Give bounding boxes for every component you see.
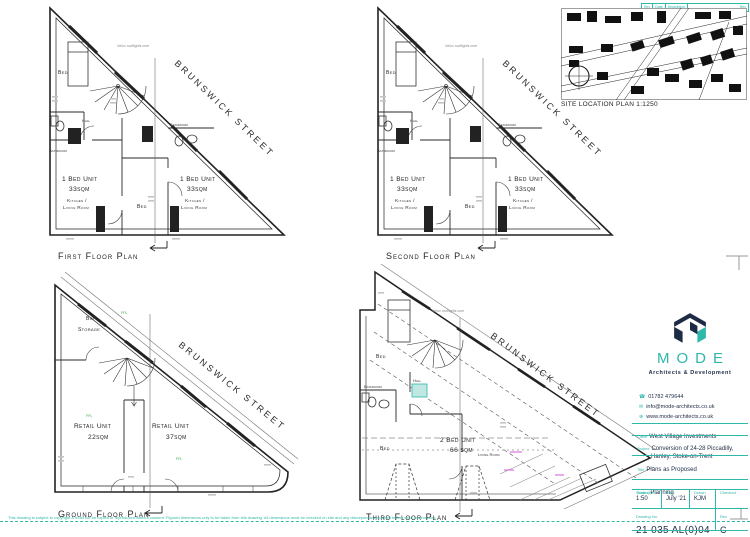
brand-name: MODE [632,350,748,367]
date-label: Date [666,490,689,495]
revision-label: Rev [720,514,727,519]
plan-linework [55,272,298,516]
phone-icon: ☎ [639,394,645,400]
title-value: Plans as Proposed [646,467,696,473]
room-label-bathroom-left: Bathroom [377,148,395,153]
site-location-map [561,8,747,100]
plan-caption: First Floor Plan [58,251,138,261]
unit-right-name: 1 Bed Unit [508,176,544,183]
drawing-number-cell: Drawing No. 21 035 AL(0)04 [632,504,716,530]
ground-floor-plan: BRUNSWICK STREET Bin Storage FFL FFL FFL… [28,268,358,530]
room-label-bathroom-right: Bathroom [170,122,188,127]
title-label: Title [637,467,644,472]
street-label: BRUNSWICK STREET [489,331,603,420]
divider [632,455,748,456]
drawn-label: Drawn [694,490,715,495]
room-label-bed-top: Bed [376,354,386,360]
unit-left-name: 1 Bed Unit [62,176,98,183]
drawing-number-label: Drawing No. [636,514,658,519]
room-label-bed-mid: Bed [380,446,390,452]
title-block: MODE Architects & Development ☎01782 479… [632,306,748,532]
room-label-bed: Bed [58,70,68,76]
room-label-bin1: Bin [86,316,94,322]
room-label-bathroom-left: Bathroom [49,148,67,153]
contact-phone-row: ☎01782 479644 [639,394,683,400]
contact-web-row: ⊕www.mode-architects.co.uk [639,414,713,420]
email-address: info@mode-architects.co.uk [646,404,714,410]
plan-note: Velux rooflights over [432,309,465,313]
unit-left-area: 33sqm [397,186,418,193]
email-icon: ✉ [639,404,643,410]
unit-right-kitchen2: Living Room [181,205,207,211]
brand-tagline: Architects & Development [632,370,748,376]
unit-right-area: 33sqm [515,186,536,193]
unit-area: 66 sqm [450,447,473,454]
unit-name: 2 Bed Unit [440,437,476,444]
unit-left-kitchen1: Kitchen / [395,198,415,204]
divider [632,530,748,531]
room-label-bed-core: Bed [465,204,475,210]
divider [632,435,748,436]
retail-right-area: 37sqm [166,434,187,441]
unit-left-name: 1 Bed Unit [390,176,426,183]
phone-number: 01782 479644 [648,394,683,400]
drawing-sheet: Rev Date Description Rev Velux rooflight… [0,0,750,537]
mode-logo-icon [672,312,708,346]
room-label-living: Living Room [478,452,500,457]
first-floor-plan: Velux rooflights over BRUNSWICK STREET B… [22,0,342,268]
room-label-bin2: Storage [78,327,100,333]
web-address: www.mode-architects.co.uk [646,414,713,420]
unit-right-name: 1 Bed Unit [180,176,216,183]
scale-value: 1:50 [636,496,661,502]
level-marker-1: FFL [121,311,127,315]
unit-right-area: 33sqm [187,186,208,193]
divider [632,479,748,480]
unit-left-kitchen2: Living Room [391,205,417,211]
room-label-hall: Hall [82,118,91,123]
level-marker-2: FFL [86,414,92,418]
web-icon: ⊕ [639,414,643,420]
checked-label: Checked [720,490,748,495]
footer-disclaimer: This drawing is subject to copyright & m… [8,515,608,520]
drawn-value: KJM [694,496,715,502]
room-label-hall: Hall [410,118,419,123]
unit-left-kitchen1: Kitchen / [67,198,87,204]
fold-mark-bottom-right [728,506,750,528]
site-plan-caption: SITE LOCATION PLAN 1:1250 [561,101,658,108]
unit-left-area: 33sqm [69,186,90,193]
footer-dashed-line [0,521,750,522]
date-value: July '21 [666,496,689,502]
unit-right-kitchen1: Kitchen / [185,198,205,204]
plan-caption: Second Floor Plan [386,251,476,261]
level-marker-3: FFL [176,457,182,461]
divider [632,423,748,424]
plan-note: Velux rooflights over [445,44,478,48]
room-label-bed: Bed [386,70,396,76]
room-label-bed-core: Bed [137,204,147,210]
title-row: TitlePlans as Proposed [637,458,745,476]
room-label-hall: Hall [413,378,422,383]
retail-left-area: 22sqm [88,434,109,441]
plan-linework [360,264,656,519]
room-label-bathroom-right: Bathroom [498,122,516,127]
plan-note: Velux rooflights over [117,44,150,48]
street-label: BRUNSWICK STREET [177,340,288,432]
fold-mark-right [724,250,750,272]
scale-label: Scale @A1 [636,490,661,495]
retail-right-name: Retail Unit [152,423,189,430]
unit-left-kitchen2: Living Room [63,205,89,211]
retail-left-name: Retail Unit [74,423,111,430]
unit-right-kitchen2: Living Room [509,205,535,211]
unit-right-kitchen1: Kitchen / [513,198,533,204]
contact-email-row: ✉info@mode-architects.co.uk [639,404,714,410]
room-label-bathroom: Bathroom [364,384,382,389]
